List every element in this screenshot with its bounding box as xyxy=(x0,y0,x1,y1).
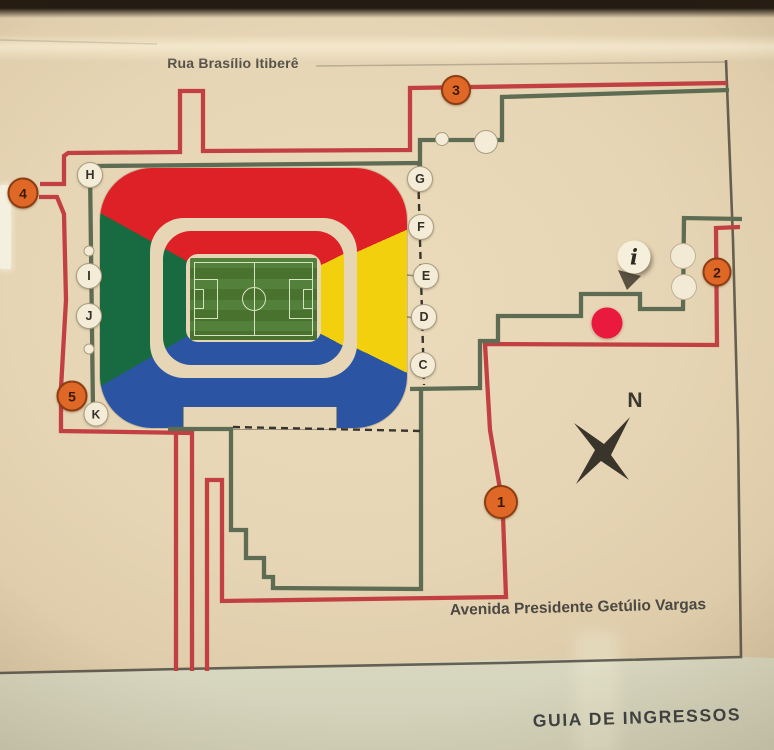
field-center-circle xyxy=(242,287,266,311)
entrance-number-1: 1 xyxy=(497,495,505,510)
compass-north-label: N xyxy=(627,389,642,413)
route-node-dot xyxy=(84,344,95,355)
gate-letter-e: E xyxy=(422,270,430,283)
gate-letter-j: J xyxy=(86,310,93,323)
route-node-circle xyxy=(671,274,697,300)
gate-circle-j: J xyxy=(76,303,102,329)
gate-circle-c: C xyxy=(410,352,436,378)
entrance-marker-1: 1 xyxy=(484,485,518,519)
route-node-dot xyxy=(84,246,95,257)
entrance-number-2: 2 xyxy=(713,265,721,279)
field-goal-box-left xyxy=(194,289,204,309)
gate-circle-h: H xyxy=(77,162,103,188)
gate-letter-c: C xyxy=(418,359,427,372)
soccer-field xyxy=(190,258,317,340)
route-node-circle xyxy=(474,130,498,154)
street-label-top: Rua Brasílio Itiberê xyxy=(167,55,299,71)
gate-letter-i: I xyxy=(87,270,90,283)
gate-circle-i: I xyxy=(76,263,102,289)
gate-letter-k: K xyxy=(92,408,101,420)
info-icon: i xyxy=(630,247,638,268)
entrance-marker-5: 5 xyxy=(57,381,88,412)
gate-circle-g: G xyxy=(407,166,433,192)
gate-letter-f: F xyxy=(417,221,425,234)
stadium-guide-map-photo: H I J K G F E D C i 1 2 3 4 5 Rua Brasíl… xyxy=(0,0,774,750)
gate-circle-e: E xyxy=(413,263,439,289)
entrance-number-4: 4 xyxy=(19,186,27,200)
entrance-marker-4: 4 xyxy=(8,178,39,209)
entrance-number-3: 3 xyxy=(452,83,460,97)
entrance-marker-2: 2 xyxy=(703,258,732,287)
gate-letter-h: H xyxy=(85,169,94,182)
gate-letter-d: D xyxy=(419,311,428,324)
route-node-dot xyxy=(435,132,449,146)
photo-smudge xyxy=(584,640,610,748)
red-point-marker xyxy=(592,308,623,339)
gate-letter-g: G xyxy=(415,173,425,186)
field-goal-box-right xyxy=(303,289,313,309)
gate-circle-f: F xyxy=(408,214,434,240)
gate-circle-d: D xyxy=(411,304,437,330)
info-marker: i xyxy=(618,241,651,274)
entrance-number-5: 5 xyxy=(68,389,76,403)
route-node-circle xyxy=(670,243,696,269)
stadium-south-ramp xyxy=(183,407,337,430)
entrance-marker-3: 3 xyxy=(441,75,471,105)
gate-circle-k: K xyxy=(84,402,109,427)
